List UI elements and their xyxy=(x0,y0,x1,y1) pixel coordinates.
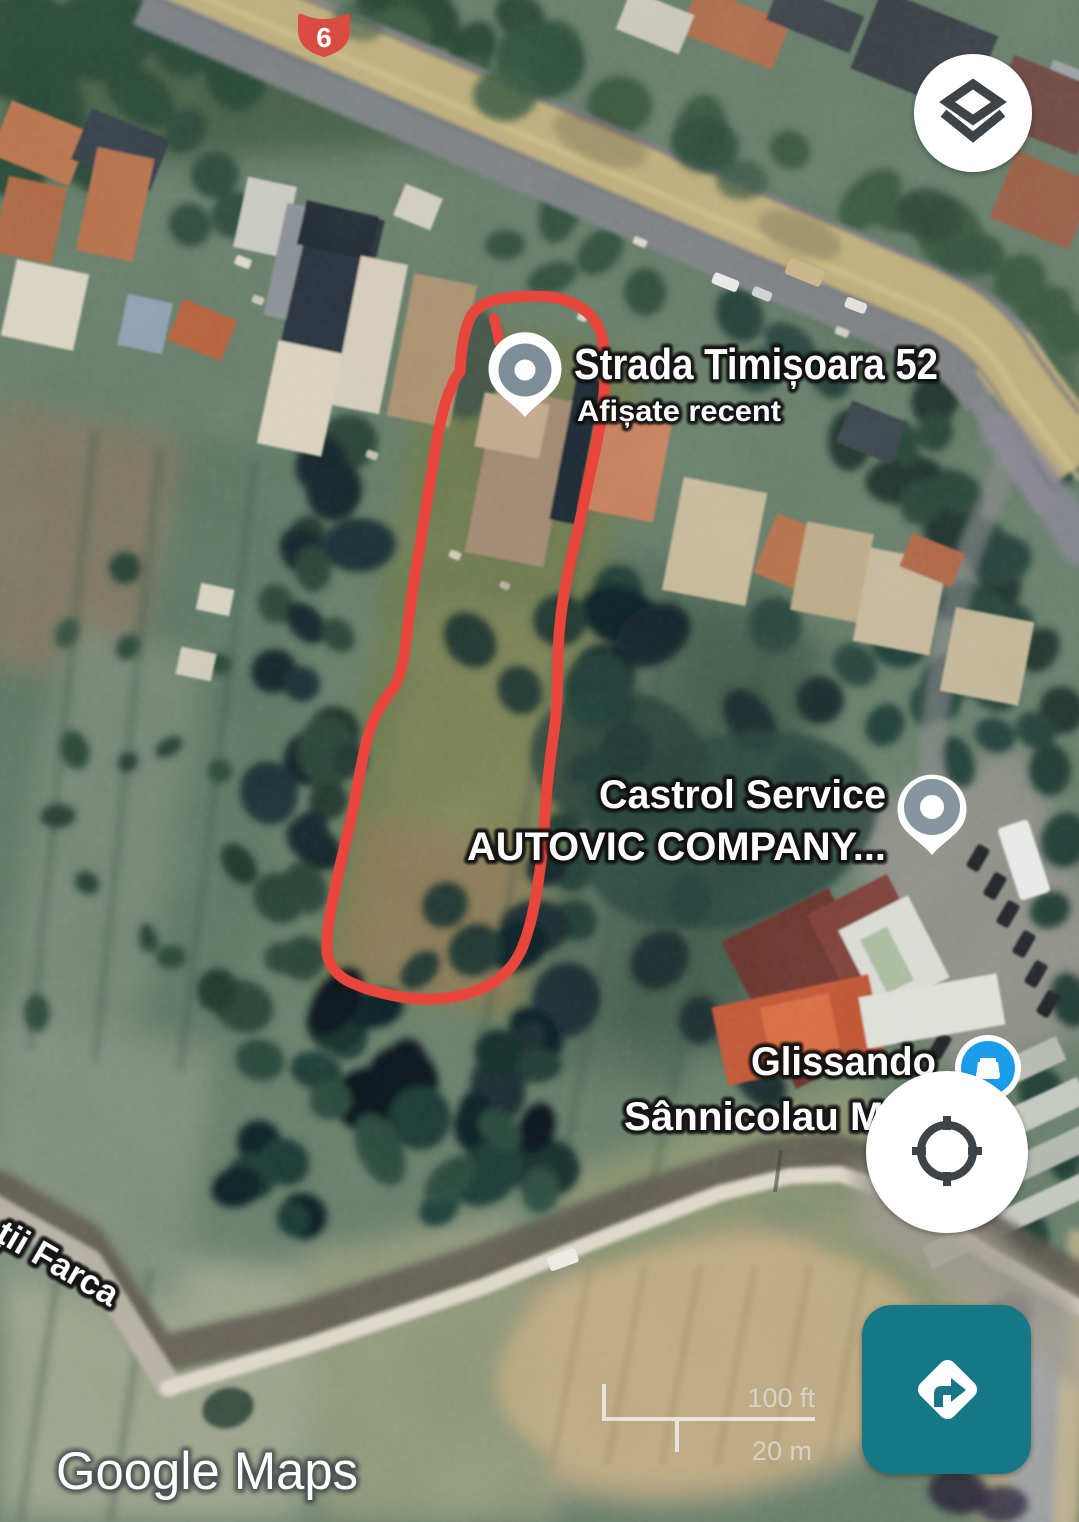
svg-text:Glissando: Glissando xyxy=(751,1040,936,1084)
svg-text:20 m: 20 m xyxy=(752,1436,812,1466)
svg-text:6: 6 xyxy=(316,22,332,53)
svg-text:AUTOVIC COMPANY...: AUTOVIC COMPANY... xyxy=(467,825,886,869)
svg-text:Afișate recent: Afișate recent xyxy=(577,395,781,428)
svg-text:Castrol Service: Castrol Service xyxy=(599,773,886,817)
svg-text:Google Maps: Google Maps xyxy=(56,1442,358,1501)
svg-text:Strada Timișoara 52: Strada Timișoara 52 xyxy=(574,340,938,389)
svg-text:100 ft: 100 ft xyxy=(747,1383,815,1413)
svg-text:Sânnicolau Ma: Sânnicolau Ma xyxy=(624,1095,907,1139)
